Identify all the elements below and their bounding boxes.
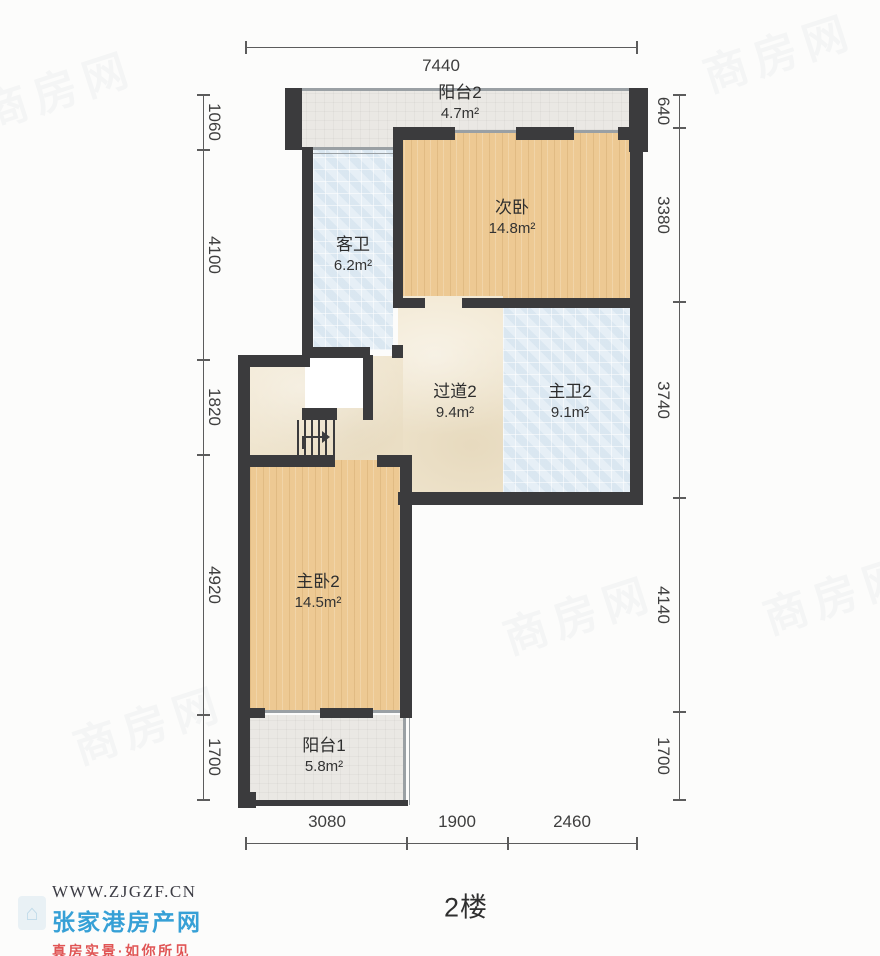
room-name: 主卫2: [548, 381, 591, 403]
dimension-label-left: 1820: [204, 388, 224, 426]
dimension-line-bottom: [246, 843, 637, 844]
wall: [320, 708, 373, 718]
room-label-master-bedroom2: 主卧2 14.5m²: [295, 571, 342, 613]
wall: [248, 455, 335, 467]
second-bedroom-window-line: [455, 130, 516, 133]
wall: [630, 127, 643, 505]
master-bedroom2-window-line: [265, 710, 320, 713]
wall: [462, 298, 634, 308]
page-title: 2楼: [444, 886, 488, 925]
room-area: 9.4m²: [433, 403, 476, 423]
wall: [400, 708, 412, 718]
room-name: 阳台2: [438, 82, 481, 104]
dimension-tick: [197, 714, 210, 716]
dimension-label-right: 3740: [653, 381, 673, 419]
dimension-tick: [197, 799, 210, 801]
room-label-hallway2: 过道2 9.4m²: [433, 381, 476, 423]
stair-tread: [318, 420, 320, 456]
room-label-master-bath2: 主卫2 9.1m²: [548, 381, 591, 423]
wall: [238, 355, 250, 807]
dimension-tick: [636, 837, 638, 850]
wall: [302, 408, 337, 420]
dimension-tick: [673, 127, 686, 129]
dimension-tick: [673, 711, 686, 713]
room-area: 4.7m²: [438, 104, 481, 124]
wall: [516, 127, 574, 140]
dimension-tick: [197, 454, 210, 456]
dimension-tick: [636, 41, 638, 54]
stairs-direction-arrow-icon: [322, 431, 330, 443]
dimension-tick: [673, 94, 686, 96]
stair-tread: [297, 420, 299, 456]
balcony1-rail-line: [409, 715, 410, 805]
wall: [238, 708, 265, 718]
room-label-guest-bath: 客卫 6.2m²: [334, 234, 372, 276]
room-label-balcony2: 阳台2 4.7m²: [438, 82, 481, 124]
dimension-label-top: 7440: [422, 56, 460, 76]
stairwell-void: [305, 358, 363, 408]
dimension-line-right: [679, 95, 680, 800]
stairs: [297, 420, 335, 456]
floorplan-page: 商房网 商房网 商房网 商房网 商房网: [0, 0, 880, 956]
logo-house-icon: ⌂: [18, 896, 46, 930]
wall: [363, 355, 373, 420]
balcony1-rail-line: [403, 715, 406, 805]
stair-tread: [311, 420, 313, 456]
dimension-label-left: 1700: [204, 738, 224, 776]
dimension-label-right: 640: [653, 97, 673, 125]
dimension-label-bottom: 1900: [438, 812, 476, 832]
dimension-tick: [673, 799, 686, 801]
dimension-line-left: [203, 95, 204, 800]
stair-tread: [304, 420, 306, 456]
dimension-tick: [507, 837, 509, 850]
watermark-text: 商房网: [754, 537, 880, 646]
dimension-label-left: 4920: [204, 566, 224, 604]
wall: [238, 800, 408, 806]
dimension-tick: [197, 94, 210, 96]
second-bedroom-window-line: [574, 130, 618, 133]
dimension-tick: [197, 149, 210, 151]
room-area: 5.8m²: [302, 757, 345, 777]
watermark-text: 商房网: [694, 0, 862, 105]
room-label-balcony1: 阳台1 5.8m²: [302, 735, 345, 777]
wall: [392, 345, 403, 358]
room-label-second-bedroom: 次卧 14.8m²: [489, 197, 536, 239]
watermark-text: 商房网: [0, 32, 142, 141]
guest-bath-window-line: [313, 153, 393, 154]
guest-bath-window-line: [313, 147, 393, 150]
dimension-tick: [245, 41, 247, 54]
room-area: 6.2m²: [334, 256, 372, 276]
watermark-text: 商房网: [494, 557, 662, 666]
logo-website-url: WWW.ZJGZF.CN: [52, 882, 202, 902]
wall: [238, 792, 256, 808]
wall: [302, 347, 370, 358]
wall: [393, 127, 403, 308]
stairs-direction-arrow-icon: [302, 436, 324, 438]
dimension-tick: [673, 497, 686, 499]
wall: [398, 492, 643, 505]
stair-tread: [333, 420, 335, 456]
room-name: 主卧2: [295, 571, 342, 593]
wall: [393, 298, 425, 308]
dimension-label-right: 3380: [653, 196, 673, 234]
wall: [285, 88, 302, 150]
room-name: 次卧: [489, 197, 536, 219]
room-name: 客卫: [334, 234, 372, 256]
site-logo: ⌂ WWW.ZJGZF.CN 张家港房产网 真房实景·如你所见: [52, 882, 202, 956]
wall: [302, 147, 313, 358]
dimension-label-left: 4100: [204, 236, 224, 274]
logo-slogan: 真房实景·如你所见: [52, 941, 202, 956]
dimension-label-bottom: 2460: [553, 812, 591, 832]
dimension-line-top: [246, 47, 637, 48]
dimension-tick: [406, 837, 408, 850]
room-name: 过道2: [433, 381, 476, 403]
dimension-label-right: 1700: [653, 737, 673, 775]
dimension-label-right: 4140: [653, 586, 673, 624]
room-area: 9.1m²: [548, 403, 591, 423]
dimension-tick: [245, 837, 247, 850]
room-area: 14.8m²: [489, 219, 536, 239]
dimension-label-left: 1060: [204, 103, 224, 141]
dimension-label-bottom: 3080: [308, 812, 346, 832]
dimension-tick: [197, 359, 210, 361]
room-name: 阳台1: [302, 735, 345, 757]
room-area: 14.5m²: [295, 593, 342, 613]
master-bedroom2-window-line: [373, 710, 400, 713]
dimension-tick: [673, 301, 686, 303]
logo-site-name: 张家港房产网: [52, 903, 202, 937]
